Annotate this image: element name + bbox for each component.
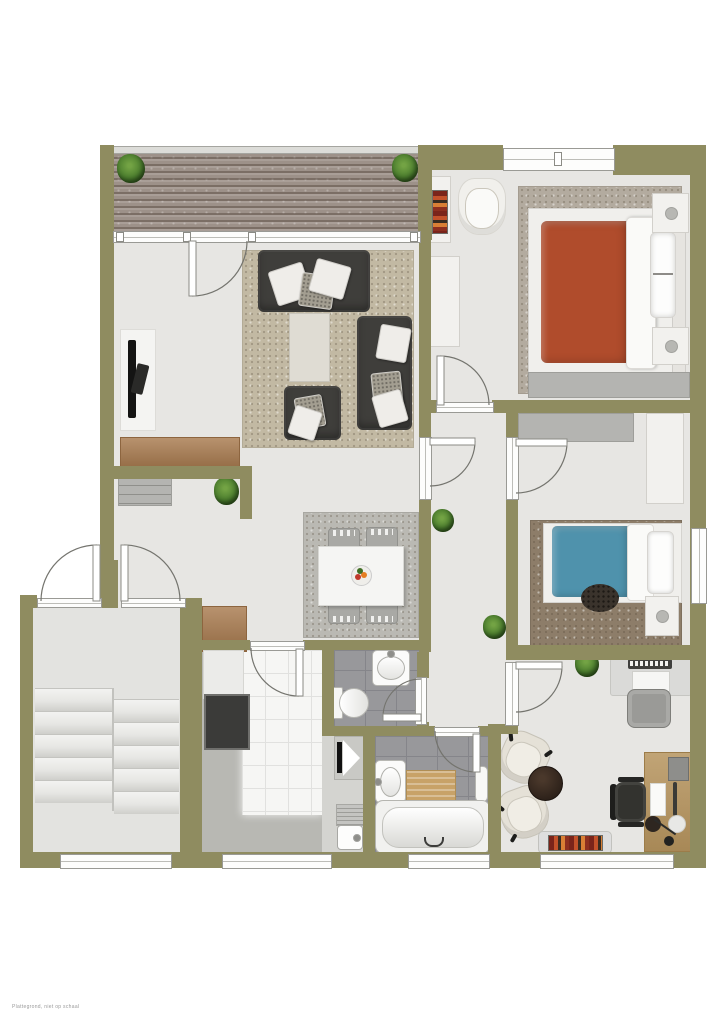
door-leaf-bathroom (473, 734, 480, 772)
door-arc-stair-right (124, 545, 180, 601)
door-arc-office (516, 666, 562, 712)
door-arc-bathroom (435, 731, 476, 772)
door-arc-stair-left (41, 545, 97, 601)
door-leaf-wc (383, 714, 421, 721)
door-leaf-balcony (189, 241, 196, 296)
door-leaf-kitchen (296, 649, 303, 696)
watermark-text: Plattegrond, niet op schaal (12, 1004, 79, 1010)
door-arc-living-hallway (430, 441, 475, 486)
door-arc-wc (383, 679, 421, 717)
door-arc-balcony (192, 241, 247, 296)
door-leaf-bedroom1 (437, 356, 444, 405)
door-arc-kitchen (251, 648, 299, 696)
door-leaf-stair-left (93, 545, 100, 601)
floor-plan: Plattegrond, niet op schaal (0, 0, 724, 1024)
door-leaf-office (516, 662, 562, 669)
door-leaf-living-hallway (430, 438, 475, 445)
door-arc-bedroom1 (440, 356, 489, 405)
door-leaf-stair-right (121, 545, 128, 601)
door-leaf-bedroom2 (516, 439, 567, 446)
door-arc-bedroom2 (516, 442, 567, 493)
door-swing-arcs (0, 0, 724, 1024)
